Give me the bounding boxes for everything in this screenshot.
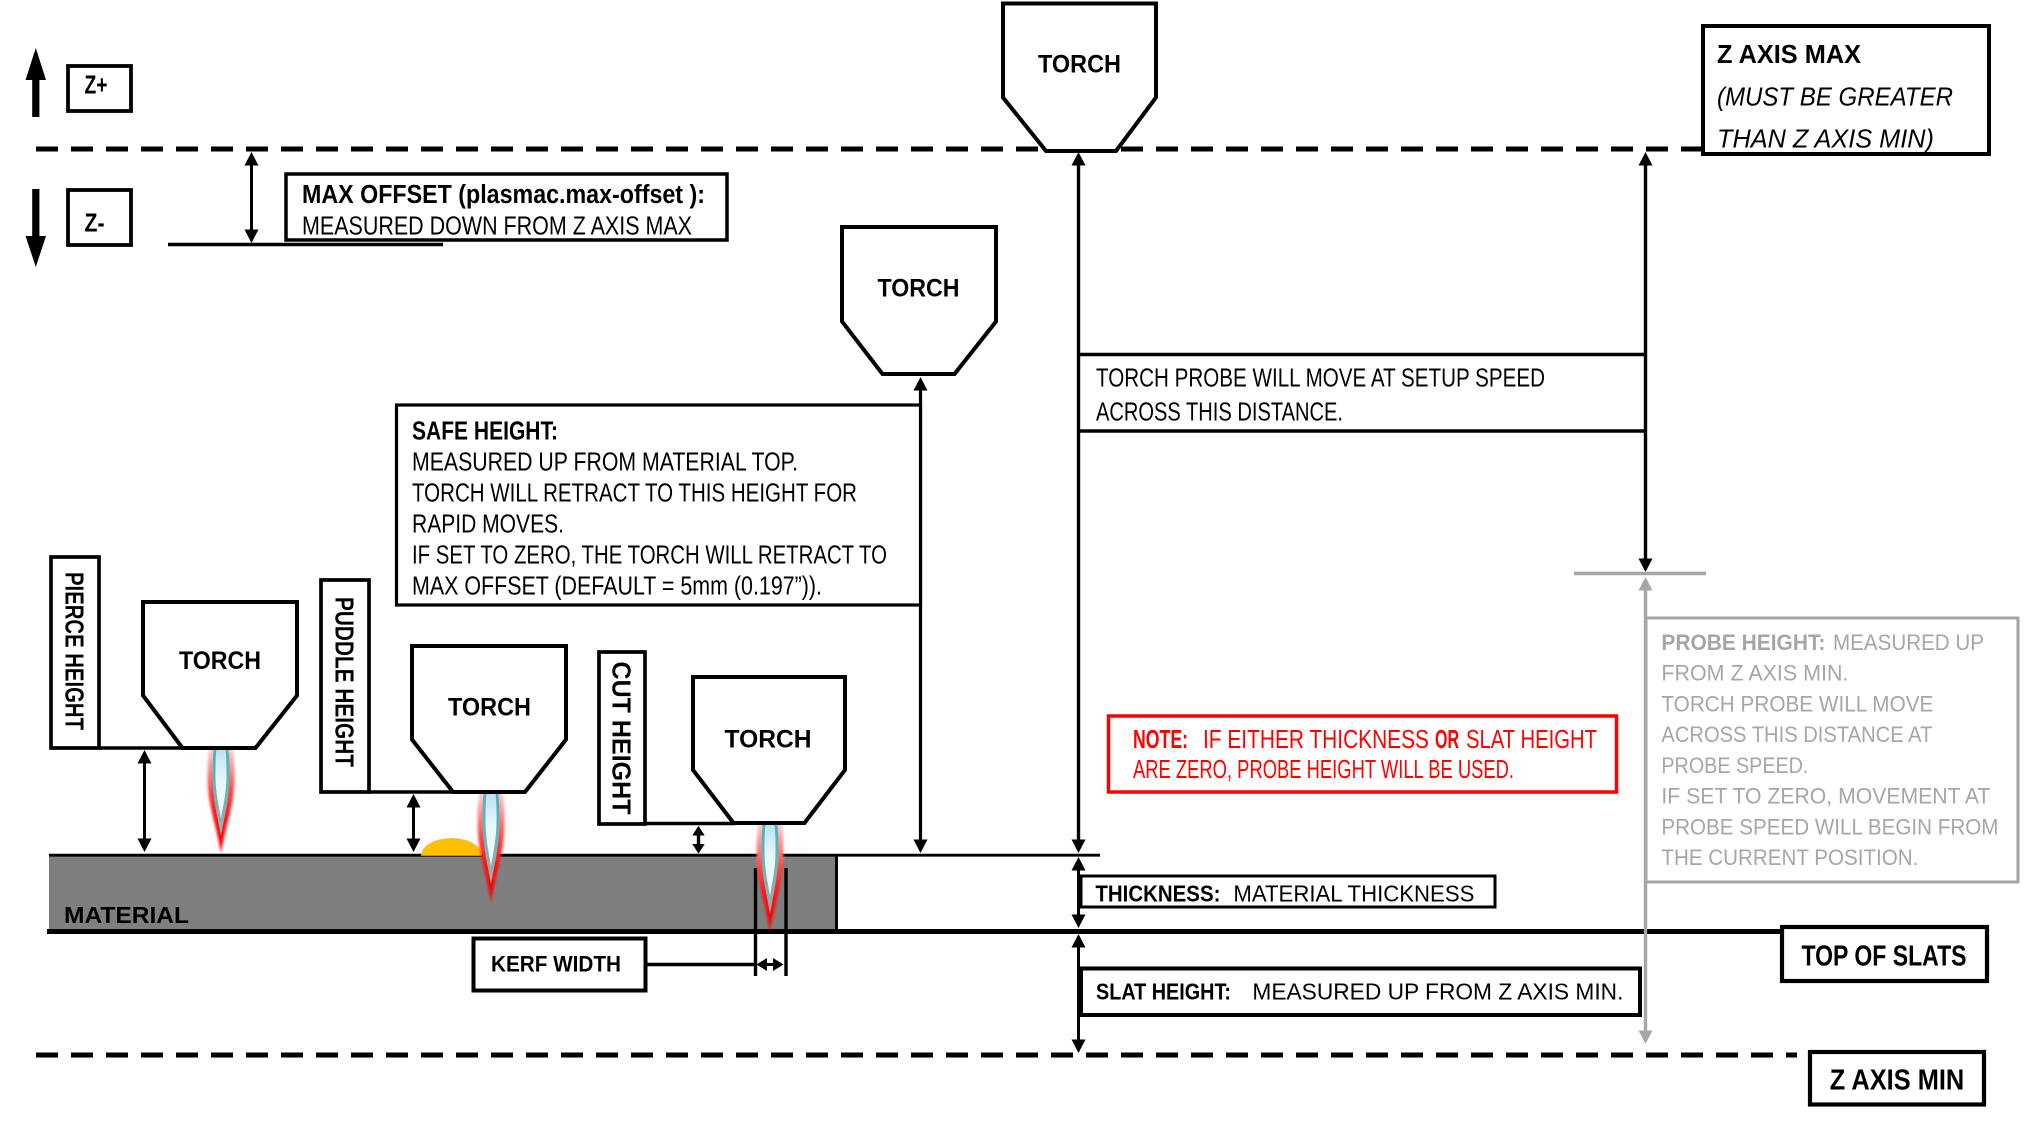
svg-text:ACROSS THIS DISTANCE.: ACROSS THIS DISTANCE. [1096,399,1343,427]
svg-text:SAFE HEIGHT:: SAFE HEIGHT: [412,418,558,446]
svg-text:Z+: Z+ [85,70,108,100]
svg-text:ACROSS THIS DISTANCE AT: ACROSS THIS DISTANCE AT [1661,722,1932,747]
svg-text:TORCH: TORCH [1038,50,1121,78]
svg-text:TORCH WILL RETRACT TO THIS HEI: TORCH WILL RETRACT TO THIS HEIGHT FOR [412,480,857,508]
svg-text:TOP OF SLATS: TOP OF SLATS [1802,941,1967,973]
svg-text:MEASURED DOWN FROM Z AXIS MAX: MEASURED DOWN FROM Z AXIS MAX [302,213,692,241]
svg-text:IF SET TO ZERO, THE TORCH WILL: IF SET TO ZERO, THE TORCH WILL RETRACT T… [412,542,887,570]
svg-text:(MUST BE GREATER: (MUST BE GREATER [1717,83,1953,111]
svg-text:IF EITHER THICKNESS: IF EITHER THICKNESS [1203,726,1429,754]
svg-text:MAX OFFSET (DEFAULT = 5mm (0.1: MAX OFFSET (DEFAULT = 5mm (0.197”)). [412,573,822,601]
svg-text:TORCH PROBE WILL MOVE AT SETUP: TORCH PROBE WILL MOVE AT SETUP SPEED [1096,365,1545,393]
svg-text:FROM Z AXIS MIN.: FROM Z AXIS MIN. [1661,661,1848,686]
svg-text:MATERIAL: MATERIAL [64,902,189,928]
svg-text:SLAT HEIGHT:: SLAT HEIGHT: [1096,979,1231,1005]
svg-text:NOTE:: NOTE: [1133,726,1188,754]
svg-text:PROBE HEIGHT:: PROBE HEIGHT: [1661,630,1825,655]
svg-text:PROBE SPEED.: PROBE SPEED. [1661,753,1808,778]
svg-text:THAN Z AXIS MIN): THAN Z AXIS MIN) [1717,125,1934,153]
svg-text:Z-: Z- [85,208,105,238]
svg-text:TORCH: TORCH [725,726,812,754]
svg-text:ARE ZERO, PROBE HEIGHT WILL BE: ARE ZERO, PROBE HEIGHT WILL BE USED. [1133,756,1514,784]
svg-text:IF SET TO ZERO, MOVEMENT AT: IF SET TO ZERO, MOVEMENT AT [1661,784,1990,809]
svg-text:SLAT HEIGHT: SLAT HEIGHT [1466,726,1597,754]
svg-text:KERF WIDTH: KERF WIDTH [491,951,621,976]
svg-text:THICKNESS:: THICKNESS: [1095,880,1220,906]
svg-text:MEASURED UP: MEASURED UP [1833,630,1984,655]
svg-text:TORCH: TORCH [878,274,960,302]
svg-text:Z AXIS MAX: Z AXIS MAX [1717,41,1861,69]
svg-text:RAPID MOVES.: RAPID MOVES. [412,511,564,539]
svg-text:PROBE SPEED WILL BEGIN FROM: PROBE SPEED WILL BEGIN FROM [1661,814,1998,839]
svg-text:MAX OFFSET (plasmac.max-offset: MAX OFFSET (plasmac.max-offset ): [302,181,705,209]
svg-text:MEASURED UP FROM MATERIAL TOP.: MEASURED UP FROM MATERIAL TOP. [412,449,798,477]
svg-text:TORCH: TORCH [179,647,261,675]
svg-text:TORCH: TORCH [448,694,531,722]
svg-text:Z AXIS MIN: Z AXIS MIN [1830,1065,1965,1097]
svg-text:CUT HEIGHT: CUT HEIGHT [607,662,637,815]
svg-text:OR: OR [1435,726,1459,754]
svg-text:TORCH PROBE WILL MOVE: TORCH PROBE WILL MOVE [1661,691,1933,716]
svg-text:MEASURED UP FROM Z AXIS MIN.: MEASURED UP FROM Z AXIS MIN. [1252,979,1623,1005]
svg-text:MATERIAL THICKNESS: MATERIAL THICKNESS [1233,880,1474,906]
svg-text:PUDDLE HEIGHT: PUDDLE HEIGHT [330,597,360,767]
svg-text:THE CURRENT POSITION.: THE CURRENT POSITION. [1661,845,1918,870]
svg-text:PIERCE HEIGHT: PIERCE HEIGHT [60,572,90,730]
